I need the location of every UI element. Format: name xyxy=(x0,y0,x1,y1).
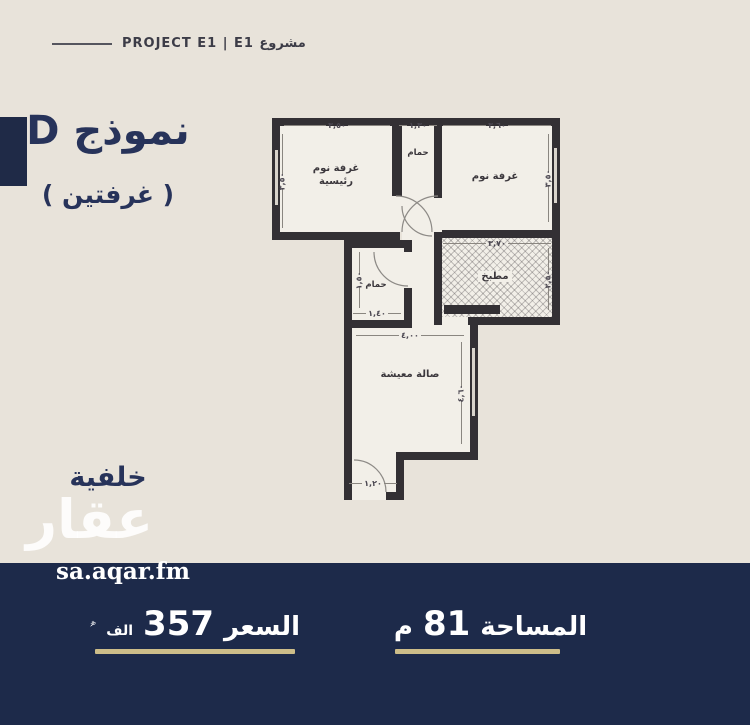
dim-bathroom-mid-bottom: ١,٤٠ xyxy=(353,309,401,318)
room-label-bedroom: غرفة نوم xyxy=(455,170,535,183)
dim-master-top: ٣,٥٠ xyxy=(284,121,390,130)
dim-bedroom-side: ٣,٥٠ xyxy=(542,134,554,222)
door-gap-bathroom-mid xyxy=(404,252,412,288)
area-label: المساحة xyxy=(480,612,587,642)
dim-bedroom-top: ٣,٦٠ xyxy=(443,121,551,130)
price-unit: الف xyxy=(106,623,133,639)
dim-bathroom-mid-side: ١,٥٠ xyxy=(353,252,365,308)
riyal-symbol-icon xyxy=(90,614,96,634)
dim-living-side: ٤,٦٠ xyxy=(455,342,467,444)
room-label-bathroom-top: حمام xyxy=(402,148,434,159)
dim-kitchen-side: ٢,٥٠ xyxy=(542,248,554,310)
dim-kitchen-top: ٣,٧٠ xyxy=(443,239,551,248)
door-gap-bathroom-top xyxy=(402,202,434,210)
aqar-watermark-site-url: sa.aqar.fm xyxy=(56,558,190,585)
dim-entry-bottom: ١,٢٠ xyxy=(349,479,397,488)
aqar-watermark-logo: عقار xyxy=(26,490,153,549)
window-living xyxy=(472,348,475,416)
area-stat: المساحة 81 م xyxy=(398,604,583,644)
area-value: 81 xyxy=(423,604,470,644)
room-label-kitchen: مطبخ xyxy=(462,270,528,283)
room-label-living: صالة معيشة xyxy=(370,368,450,381)
area-unit: م xyxy=(394,612,413,642)
dim-master-side: ٣,٥٠ xyxy=(276,134,288,228)
room-label-master-bedroom: غرفة نوم رئيسية xyxy=(298,162,374,188)
price-label: السعر xyxy=(224,612,300,642)
window-bedroom xyxy=(554,148,557,203)
kitchen-counter xyxy=(444,305,500,314)
price-stat: السعر 357 الف xyxy=(90,604,300,644)
dim-living-top: ٤,٠٠ xyxy=(356,331,464,340)
door-gap-master-bedroom xyxy=(392,196,402,232)
price-underline xyxy=(95,649,295,654)
footer-bar xyxy=(0,563,750,725)
door-gap-bedroom xyxy=(434,198,442,232)
door-gap-entry xyxy=(352,492,386,500)
price-value: 357 xyxy=(143,604,214,644)
area-underline xyxy=(395,649,560,654)
door-gap-kitchen xyxy=(442,317,468,325)
dim-bathroom-top: ١,٣٠ xyxy=(399,121,437,130)
